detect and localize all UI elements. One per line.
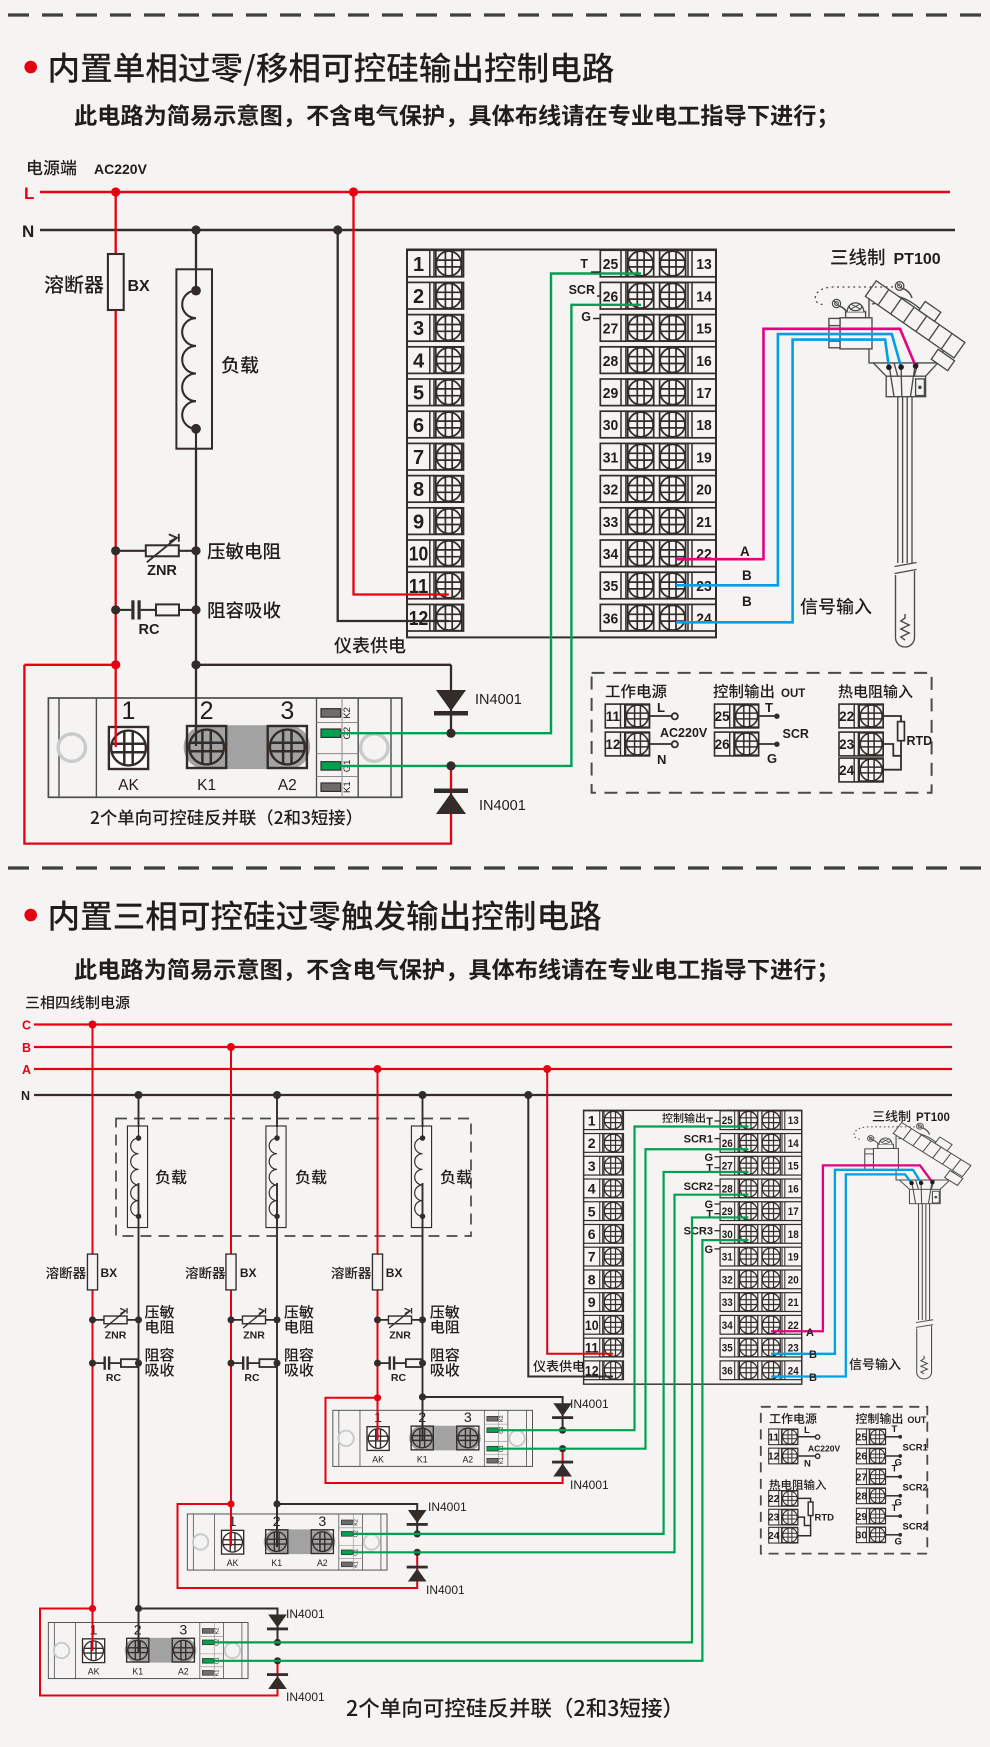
svg-text:T: T xyxy=(892,1464,898,1475)
svg-text:ZNR: ZNR xyxy=(243,1330,265,1342)
svg-text:G: G xyxy=(895,1536,902,1547)
svg-text:IN4001: IN4001 xyxy=(286,1690,325,1704)
svg-text:PT100: PT100 xyxy=(894,251,941,268)
svg-text:L: L xyxy=(24,184,34,203)
svg-text:IN4001: IN4001 xyxy=(570,1397,609,1411)
svg-text:11: 11 xyxy=(768,1431,779,1443)
svg-text:AC220V: AC220V xyxy=(660,726,708,740)
svg-text:25: 25 xyxy=(715,709,731,724)
svg-text:N: N xyxy=(22,222,34,241)
svg-text:12: 12 xyxy=(768,1451,780,1463)
svg-text:A: A xyxy=(22,1063,31,1077)
svg-text:IN4001: IN4001 xyxy=(479,798,526,814)
svg-text:28: 28 xyxy=(856,1491,868,1503)
svg-text:22: 22 xyxy=(768,1493,780,1505)
svg-text:RC: RC xyxy=(244,1372,260,1384)
svg-text:SCR1: SCR1 xyxy=(903,1443,929,1454)
svg-text:T: T xyxy=(580,257,588,271)
svg-text:IN4001: IN4001 xyxy=(428,1500,467,1514)
svg-text:25: 25 xyxy=(856,1432,868,1444)
svg-text:N: N xyxy=(657,752,666,767)
svg-text:B: B xyxy=(22,1041,31,1055)
svg-text:23: 23 xyxy=(768,1512,780,1524)
svg-text:23: 23 xyxy=(839,737,855,752)
svg-text:G: G xyxy=(581,310,591,324)
svg-text:22: 22 xyxy=(839,709,854,724)
svg-text:29: 29 xyxy=(856,1511,868,1523)
svg-text:BX: BX xyxy=(240,1266,257,1280)
svg-text:SCR1: SCR1 xyxy=(684,1134,713,1146)
svg-text:B: B xyxy=(809,1349,817,1361)
svg-text:C: C xyxy=(22,1019,31,1033)
svg-text:AC220V: AC220V xyxy=(808,1444,840,1454)
svg-text:G: G xyxy=(704,1244,713,1256)
svg-text:BX: BX xyxy=(128,278,151,295)
svg-text:AC220V: AC220V xyxy=(94,161,148,177)
svg-text:L: L xyxy=(657,700,665,715)
svg-text:T: T xyxy=(892,1503,898,1514)
svg-text:N: N xyxy=(21,1089,30,1103)
svg-text:SCR2: SCR2 xyxy=(903,1482,928,1493)
svg-text:L: L xyxy=(804,1425,810,1436)
svg-text:B: B xyxy=(742,568,752,583)
svg-text:N: N xyxy=(804,1459,811,1470)
svg-text:SCR3: SCR3 xyxy=(684,1226,713,1238)
svg-text:30: 30 xyxy=(856,1530,868,1542)
svg-text:RC: RC xyxy=(106,1372,122,1384)
svg-text:A: A xyxy=(740,544,750,559)
svg-text:26: 26 xyxy=(856,1451,868,1463)
svg-text:SCR: SCR xyxy=(783,727,809,741)
svg-text:RTD: RTD xyxy=(907,734,933,748)
svg-text:24: 24 xyxy=(768,1530,780,1542)
svg-text:ZNR: ZNR xyxy=(389,1330,411,1342)
svg-text:BX: BX xyxy=(386,1266,403,1280)
svg-text:11: 11 xyxy=(606,709,621,724)
svg-text:24: 24 xyxy=(839,763,855,778)
svg-text:RC: RC xyxy=(391,1372,407,1384)
svg-text:SCR: SCR xyxy=(569,283,595,297)
svg-text:26: 26 xyxy=(715,737,731,752)
svg-text:SCR2: SCR2 xyxy=(684,1181,713,1193)
svg-text:IN4001: IN4001 xyxy=(570,1478,609,1492)
svg-text:T: T xyxy=(892,1424,898,1435)
svg-text:SCR2: SCR2 xyxy=(903,1522,928,1533)
svg-text:B: B xyxy=(742,594,752,609)
svg-text:G: G xyxy=(767,751,777,766)
svg-text:OUT: OUT xyxy=(781,688,805,700)
svg-text:A: A xyxy=(806,1327,814,1339)
svg-text:OUT: OUT xyxy=(907,1415,927,1425)
svg-text:ZNR: ZNR xyxy=(105,1330,127,1342)
svg-text:12: 12 xyxy=(605,737,620,752)
svg-text:RC: RC xyxy=(139,622,160,638)
svg-text:PT100: PT100 xyxy=(916,1112,950,1124)
svg-text:BX: BX xyxy=(101,1266,118,1280)
svg-text:27: 27 xyxy=(856,1471,868,1483)
svg-text:ZNR: ZNR xyxy=(147,563,177,579)
svg-text:T: T xyxy=(706,1209,713,1221)
svg-text:IN4001: IN4001 xyxy=(286,1607,325,1621)
svg-text:B: B xyxy=(809,1372,817,1384)
svg-text:T: T xyxy=(765,700,773,715)
svg-text:RTD: RTD xyxy=(815,1513,835,1524)
svg-text:IN4001: IN4001 xyxy=(426,1583,465,1597)
svg-text:IN4001: IN4001 xyxy=(475,692,522,708)
